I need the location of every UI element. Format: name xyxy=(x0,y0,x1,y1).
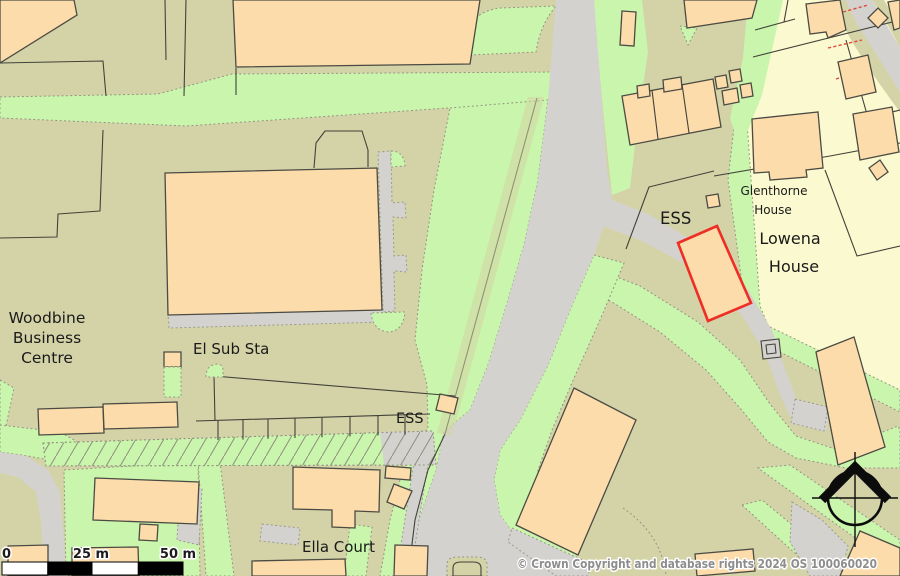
label-lowena-line1: Lowena xyxy=(759,229,820,248)
label-glenthorne-line2: House xyxy=(754,203,792,217)
building xyxy=(620,11,636,46)
el-sub-sta-yard xyxy=(164,367,181,397)
scale-label-start: 0 xyxy=(2,547,11,562)
map-viewport[interactable]: Woodbine Business Centre El Sub Sta ESS … xyxy=(0,0,900,576)
building-warehouse-woodbine xyxy=(165,168,382,315)
building-small xyxy=(706,194,720,208)
os-map-canvas[interactable]: Woodbine Business Centre El Sub Sta ESS … xyxy=(0,0,900,576)
scale-bar-segment xyxy=(47,562,92,575)
building xyxy=(853,107,899,160)
building-small xyxy=(139,524,158,541)
label-ella-court: Ella Court xyxy=(302,538,375,556)
substation-enclosure xyxy=(761,339,781,359)
label-lowena-line2: House xyxy=(769,257,819,276)
label-glenthorne-line1: Glenthorne xyxy=(741,184,808,198)
scale-bar-segment xyxy=(138,562,183,575)
building-ess-small xyxy=(436,394,458,414)
label-ess-lower: ESS xyxy=(396,411,424,427)
traffic-island xyxy=(447,557,487,576)
building xyxy=(38,407,104,435)
building xyxy=(806,0,846,38)
building xyxy=(394,545,428,576)
label-el-sub-sta: El Sub Sta xyxy=(193,340,269,358)
building-el-sub-sta xyxy=(164,352,181,367)
building xyxy=(93,478,199,524)
building-small xyxy=(729,69,742,83)
building xyxy=(103,402,178,429)
building-annex xyxy=(663,77,682,92)
building-small xyxy=(722,88,739,105)
scale-label-end: 50 m xyxy=(160,547,196,562)
building xyxy=(252,559,346,576)
label-ess-upper: ESS xyxy=(660,209,691,228)
building xyxy=(233,0,480,67)
building-small xyxy=(385,466,411,480)
building-small xyxy=(740,83,753,98)
label-woodbine-line2: Business xyxy=(13,329,81,347)
building-glenthorne-house xyxy=(752,112,823,180)
copyright-text: © Crown Copyright and database rights 20… xyxy=(517,556,877,571)
building-annex xyxy=(637,84,650,98)
label-woodbine-line1: Woodbine xyxy=(9,309,86,327)
label-woodbine-line3: Centre xyxy=(21,349,73,367)
scale-label-mid: 25 m xyxy=(73,547,109,562)
building-small xyxy=(715,75,728,89)
